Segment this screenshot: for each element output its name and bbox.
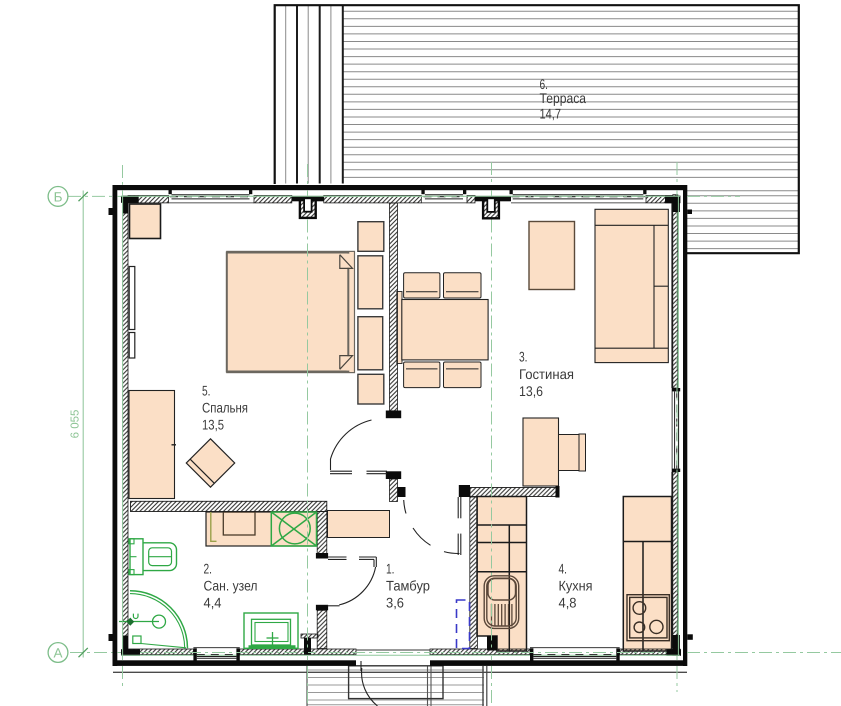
- svg-text:4,4: 4,4: [204, 595, 222, 611]
- svg-text:1.: 1.: [386, 561, 395, 577]
- svg-text:Сан. узел: Сан. узел: [204, 578, 258, 594]
- svg-text:13,5: 13,5: [202, 417, 224, 433]
- svg-text:Кухня: Кухня: [559, 578, 593, 594]
- svg-text:5.: 5.: [202, 383, 211, 399]
- svg-text:3.: 3.: [519, 349, 528, 365]
- svg-text:4,8: 4,8: [559, 595, 577, 611]
- svg-text:3,6: 3,6: [386, 595, 404, 611]
- svg-text:6 055: 6 055: [70, 410, 82, 439]
- svg-text:Гостиная: Гостиная: [519, 366, 574, 382]
- svg-text:4.: 4.: [559, 561, 568, 577]
- svg-text:Б: Б: [54, 189, 63, 204]
- svg-text:Тамбур: Тамбур: [386, 578, 430, 594]
- svg-text:Спальня: Спальня: [202, 400, 248, 416]
- svg-text:А: А: [53, 646, 62, 661]
- svg-text:14,7: 14,7: [540, 106, 562, 122]
- svg-text:13,6: 13,6: [519, 383, 543, 399]
- svg-text:Терраса: Терраса: [540, 90, 587, 106]
- svg-text:2.: 2.: [204, 561, 213, 577]
